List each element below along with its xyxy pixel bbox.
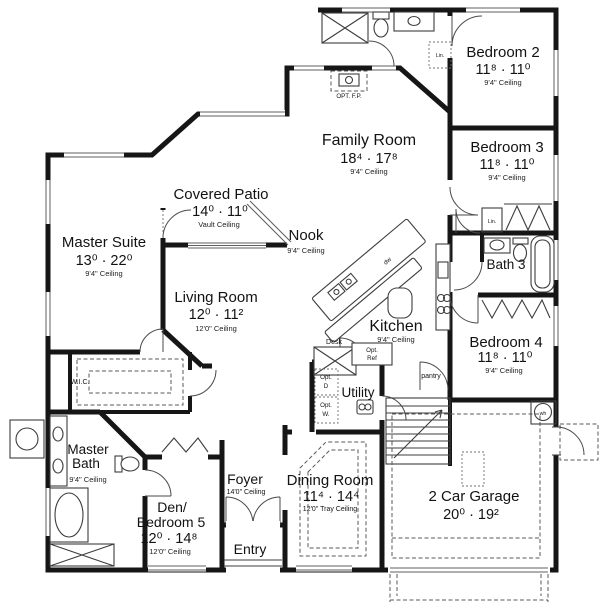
label-covered-patio-ceiling: Vault Ceiling bbox=[198, 220, 240, 229]
label-master-bath-line2: Bath bbox=[72, 456, 100, 471]
nook-table bbox=[388, 288, 412, 318]
label-bedroom4-name: Bedroom 4 bbox=[469, 334, 542, 351]
label-living-room-name: Living Room bbox=[174, 289, 257, 306]
floor-plan-drawing: dw bbox=[0, 0, 600, 611]
bath2-fixtures bbox=[322, 12, 434, 43]
label-bath3-name: Bath 3 bbox=[486, 257, 525, 272]
label-family-room-ceiling: 9'4" Ceiling bbox=[350, 167, 387, 176]
fireplace bbox=[331, 71, 367, 91]
label-master-suite-dims: 13⁰ · 22⁰ bbox=[76, 253, 133, 269]
label-wic-name: W.I.C. bbox=[70, 379, 89, 386]
label-den-ceiling: 12'0" Ceiling bbox=[149, 547, 191, 556]
label-den-line2: Bedroom 5 bbox=[137, 514, 206, 530]
desk bbox=[314, 347, 356, 375]
label-family-room-name: Family Room bbox=[322, 132, 416, 149]
den-closet bbox=[162, 438, 208, 452]
label-kitchen-ceiling: 9'4" Ceiling bbox=[377, 335, 414, 344]
label-bedroom3-ceiling: 9'4" Ceiling bbox=[488, 173, 525, 182]
bedroom4-closet bbox=[482, 300, 550, 318]
label-kitchen-name: Kitchen bbox=[369, 318, 422, 335]
label-opt-fireplace: OPT. F.P. bbox=[336, 93, 362, 100]
label-living-room-ceiling: 12'0" Ceiling bbox=[195, 324, 237, 333]
nook-angled-window bbox=[247, 201, 291, 245]
label-dining-dims: 11⁴ · 14⁴ bbox=[303, 489, 360, 505]
label-opt-ref-line1: Opt. bbox=[366, 347, 378, 354]
ac-pad bbox=[10, 420, 44, 458]
bedroom3-closet bbox=[482, 204, 552, 232]
label-family-room-dims: 18⁴ · 17⁸ bbox=[340, 151, 398, 167]
label-bedroom2-dims: 11⁸ · 11⁰ bbox=[476, 62, 531, 78]
label-master-suite-name: Master Suite bbox=[62, 234, 146, 251]
label-nook-name: Nook bbox=[288, 227, 324, 244]
label-entry-name: Entry bbox=[234, 541, 267, 557]
label-foyer-name: Foyer bbox=[227, 471, 263, 487]
label-garage-dims: 20⁰ · 19² bbox=[443, 507, 499, 523]
label-opt-ref-line2: Ref bbox=[367, 355, 377, 362]
label-master-suite-ceiling: 9'4" Ceiling bbox=[85, 269, 122, 278]
label-utility-name: Utility bbox=[342, 385, 375, 400]
label-water-heater: wh bbox=[540, 411, 547, 417]
label-bedroom3-dims: 11⁸ · 11⁰ bbox=[480, 157, 535, 173]
stairs bbox=[386, 398, 450, 464]
garage-side-door bbox=[552, 424, 598, 460]
floor-plan-page: dw bbox=[0, 0, 600, 611]
label-bedroom4-ceiling: 9'4" Ceiling bbox=[485, 366, 522, 375]
label-master-bath-line1: Master bbox=[67, 442, 109, 457]
label-den-dims: 12⁰ · 14⁸ bbox=[140, 531, 197, 547]
label-dining-name: Dining Room bbox=[287, 472, 374, 489]
label-opt-washer-line2: W. bbox=[322, 411, 329, 418]
label-bedroom2-name: Bedroom 2 bbox=[466, 44, 539, 61]
label-den-line1: Den/ bbox=[157, 499, 187, 515]
label-pantry: pantry bbox=[421, 373, 441, 380]
label-nook-ceiling: 9'4" Ceiling bbox=[287, 246, 324, 255]
label-living-room-dims: 12⁰ · 11² bbox=[189, 307, 244, 323]
label-covered-patio-dims: 14⁰ · 11⁰ bbox=[192, 204, 248, 220]
label-linen-bed3: Lin. bbox=[488, 219, 496, 225]
label-linen-hall: Lin. bbox=[436, 53, 444, 59]
wic-shelving bbox=[77, 359, 183, 405]
label-desk: Desk bbox=[326, 339, 342, 346]
label-opt-washer-line1: Opt. bbox=[320, 402, 332, 409]
label-bedroom4-dims: 11⁸ · 11⁰ bbox=[478, 350, 533, 366]
kitchen-range-counter bbox=[436, 244, 451, 330]
label-covered-patio-name: Covered Patio bbox=[173, 186, 268, 203]
room-labels: Family Room 18⁴ · 17⁸ 9'4" Ceiling Bedro… bbox=[62, 44, 544, 557]
label-master-bath-ceiling: 9'4" Ceiling bbox=[69, 475, 106, 484]
label-opt-dryer-line2: D bbox=[324, 383, 329, 390]
label-dining-ceiling: 12'0" Tray Ceiling bbox=[303, 506, 358, 513]
label-opt-dryer-line1: Opt. bbox=[320, 374, 332, 381]
label-foyer-ceiling: 14'0" Ceiling bbox=[227, 489, 266, 496]
label-garage-name: 2 Car Garage bbox=[429, 488, 520, 505]
label-bedroom3-name: Bedroom 3 bbox=[470, 139, 543, 156]
label-bedroom2-ceiling: 9'4" Ceiling bbox=[484, 78, 521, 87]
